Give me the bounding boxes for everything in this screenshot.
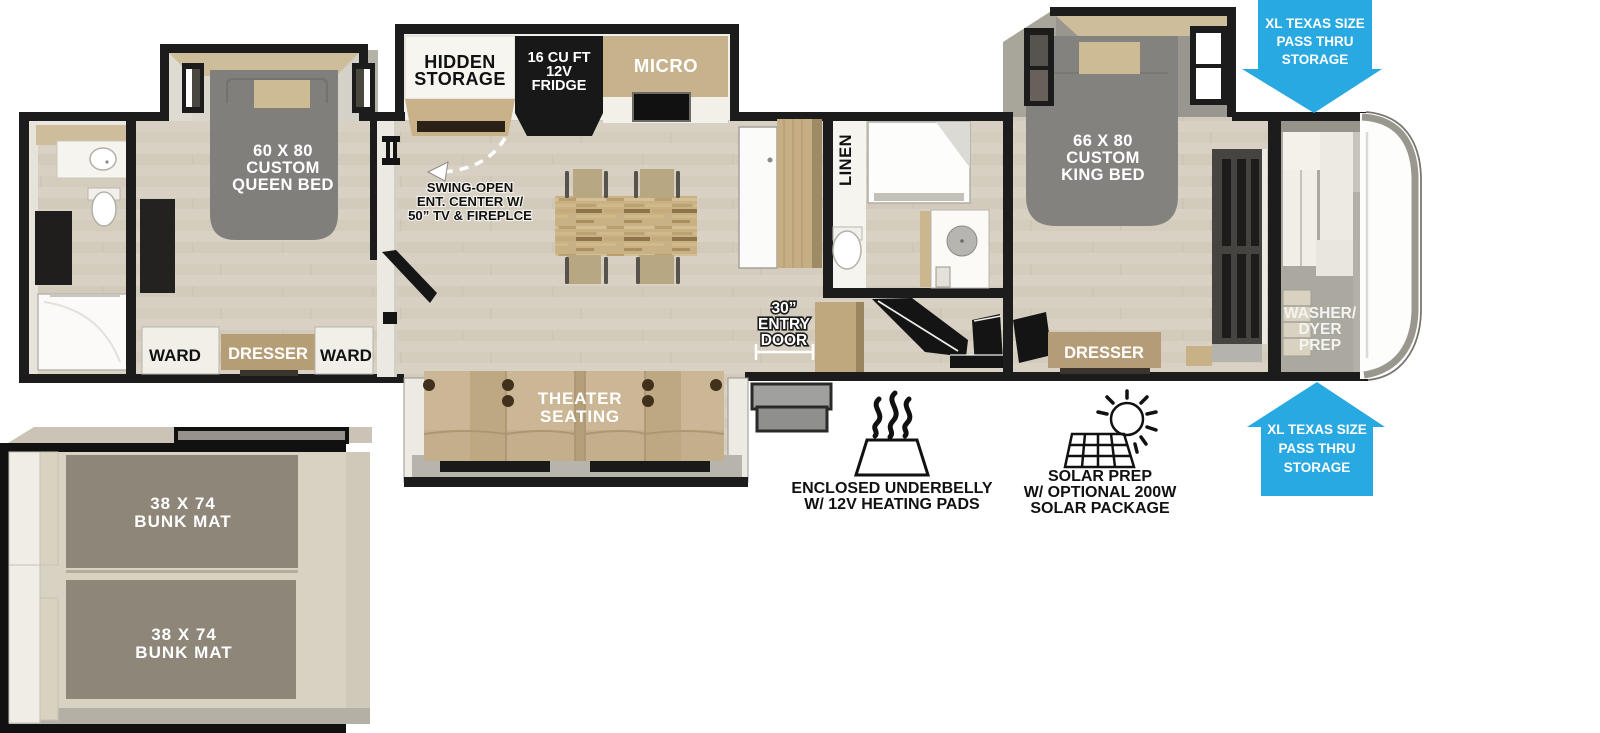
svg-text:CUSTOM: CUSTOM [246,159,320,177]
svg-text:DRESSER: DRESSER [1064,344,1144,362]
svg-text:BUNK MAT: BUNK MAT [134,512,231,531]
svg-text:SWING-OPEN: SWING-OPEN [427,180,513,195]
svg-text:WARD: WARD [149,346,201,365]
svg-text:THEATER: THEATER [538,389,623,408]
svg-text:60 X 80: 60 X 80 [253,142,313,160]
svg-text:ENCLOSED UNDERBELLY: ENCLOSED UNDERBELLY [791,480,993,497]
svg-text:KING BED: KING BED [1061,166,1145,184]
svg-text:XL TEXAS SIZE: XL TEXAS SIZE [1267,422,1367,437]
svg-text:LINEN: LINEN [837,134,855,186]
svg-text:XL TEXAS SIZE: XL TEXAS SIZE [1265,16,1365,31]
svg-text:30”: 30” [772,300,797,317]
svg-text:STORAGE: STORAGE [1284,460,1351,475]
svg-text:QUEEN BED: QUEEN BED [232,176,334,194]
svg-text:W/ OPTIONAL 200W: W/ OPTIONAL 200W [1024,484,1178,501]
svg-text:W/ 12V HEATING PADS: W/ 12V HEATING PADS [804,496,980,513]
svg-text:BUNK MAT: BUNK MAT [135,643,232,662]
svg-text:DOOR: DOOR [761,332,808,349]
svg-text:STORAGE: STORAGE [1282,52,1349,67]
svg-text:PASS THRU: PASS THRU [1276,34,1353,49]
svg-text:38 X 74: 38 X 74 [151,625,217,644]
svg-text:SOLAR PACKAGE: SOLAR PACKAGE [1030,500,1170,517]
svg-text:MICRO: MICRO [634,55,698,76]
svg-text:38 X 74: 38 X 74 [150,494,216,513]
svg-text:66 X 80: 66 X 80 [1073,132,1133,150]
svg-text:SOLAR PREP: SOLAR PREP [1048,468,1152,485]
svg-text:CUSTOM: CUSTOM [1066,149,1140,167]
svg-text:SEATING: SEATING [540,407,620,426]
svg-text:DYER: DYER [1298,321,1341,338]
svg-text:ENT. CENTER W/: ENT. CENTER W/ [417,194,524,209]
svg-text:50” TV & FIREPLCE: 50” TV & FIREPLCE [408,208,532,223]
svg-text:WASHER/: WASHER/ [1284,305,1357,322]
svg-text:PREP: PREP [1299,337,1341,354]
svg-text:ENTRY: ENTRY [758,316,811,333]
svg-text:PASS THRU: PASS THRU [1278,441,1355,456]
svg-text:WARD: WARD [320,346,372,365]
svg-text:STORAGE: STORAGE [414,69,505,89]
svg-text:FRIDGE: FRIDGE [532,78,587,94]
svg-text:DRESSER: DRESSER [228,345,308,363]
